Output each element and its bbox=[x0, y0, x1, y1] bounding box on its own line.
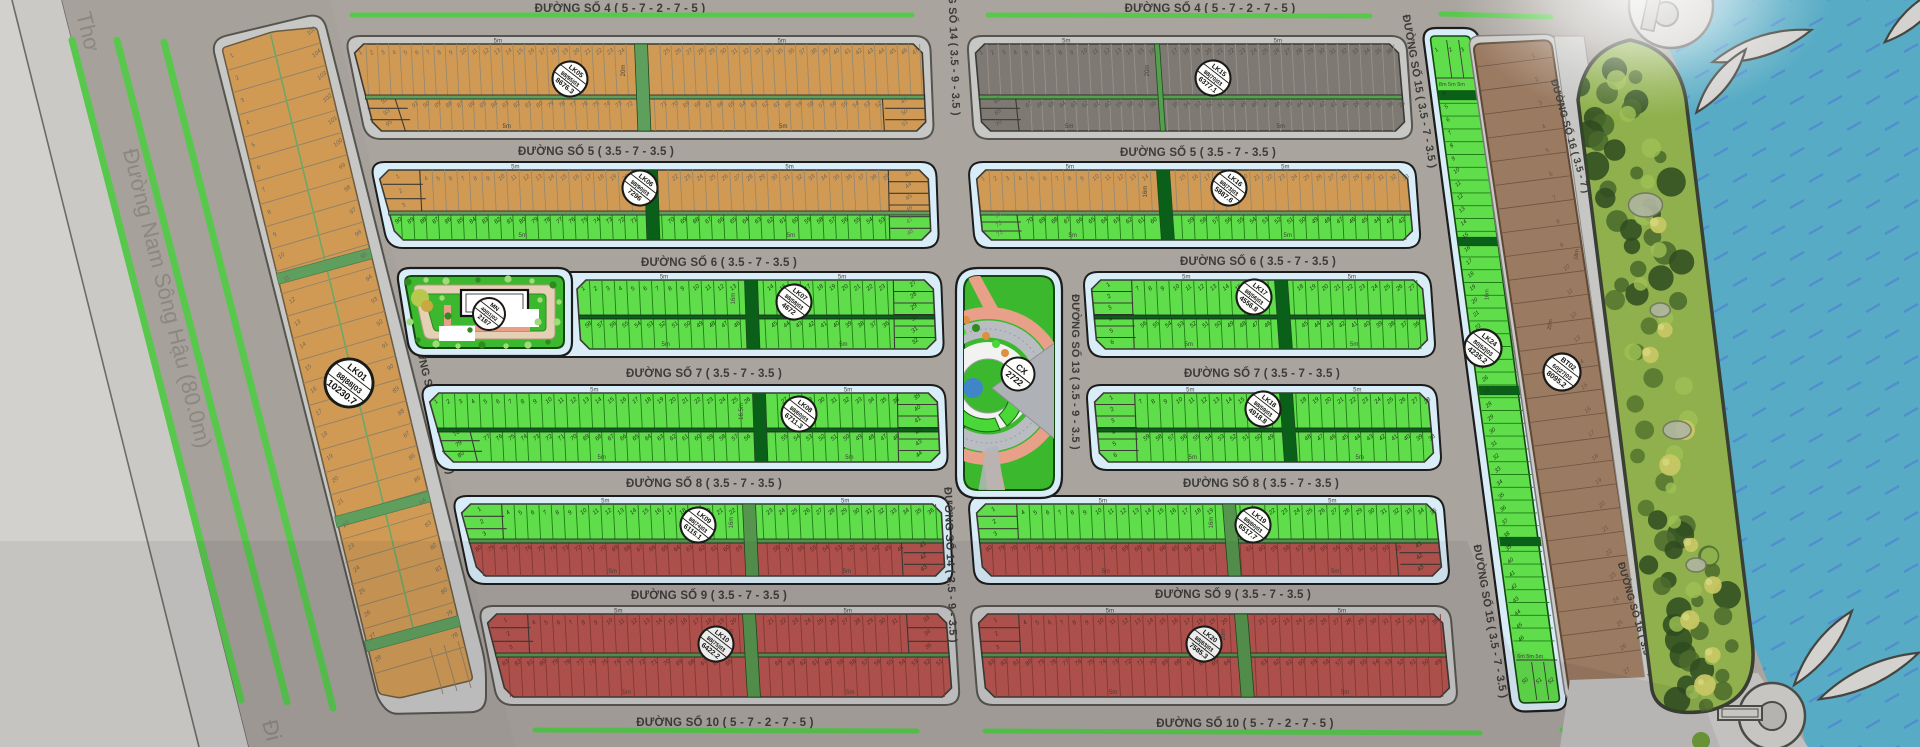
svg-text:5m: 5m bbox=[845, 455, 853, 461]
svg-text:16m: 16m bbox=[1143, 186, 1149, 198]
svg-text:5m: 5m bbox=[1066, 165, 1074, 171]
svg-text:16m: 16m bbox=[1209, 517, 1215, 529]
svg-text:5m: 5m bbox=[787, 233, 795, 239]
svg-text:5m: 5m bbox=[1350, 342, 1358, 348]
svg-text:20m: 20m bbox=[621, 65, 627, 77]
svg-text:5m: 5m bbox=[1182, 275, 1190, 281]
svg-text:5m: 5m bbox=[1185, 342, 1193, 348]
svg-text:ĐƯỜNG SỐ 8 ( 3.5 - 7 - 3.5 ): ĐƯỜNG SỐ 8 ( 3.5 - 7 - 3.5 ) bbox=[1183, 476, 1339, 490]
svg-text:ĐƯỜNG SỐ 6 ( 3.5 - 7 - 3.5 ): ĐƯỜNG SỐ 6 ( 3.5 - 7 - 3.5 ) bbox=[641, 255, 797, 269]
svg-text:16m: 16m bbox=[1485, 289, 1491, 300]
svg-text:5m: 5m bbox=[1353, 388, 1361, 394]
svg-text:16m: 16m bbox=[731, 293, 737, 305]
svg-text:5m: 5m bbox=[1356, 455, 1364, 461]
svg-text:5m: 5m bbox=[1328, 499, 1336, 505]
svg-text:5m: 5m bbox=[1065, 124, 1073, 130]
svg-text:5m: 5m bbox=[598, 455, 606, 461]
svg-text:ĐƯỜNG SỐ 7 ( 3.5 - 7 - 3.5 ): ĐƯỜNG SỐ 7 ( 3.5 - 7 - 3.5 ) bbox=[1184, 366, 1340, 380]
svg-text:5m: 5m bbox=[662, 342, 670, 348]
svg-text:5m: 5m bbox=[519, 233, 527, 239]
svg-text:5m: 5m bbox=[841, 499, 849, 505]
svg-text:5m: 5m bbox=[494, 39, 502, 45]
svg-text:5m: 5m bbox=[779, 124, 787, 130]
svg-text:5m: 5m bbox=[1186, 388, 1194, 394]
svg-text:ĐƯỜNG SỐ 13 ( 3.5 - 9 - 3.5 ): ĐƯỜNG SỐ 13 ( 3.5 - 9 - 3.5 ) bbox=[1069, 294, 1083, 450]
svg-text:ĐƯỜNG SỐ 5 ( 3.5 - 7 - 3.5 ): ĐƯỜNG SỐ 5 ( 3.5 - 7 - 3.5 ) bbox=[1120, 145, 1276, 159]
svg-text:ĐƯỜNG SỐ 6 ( 3.5 - 7 - 3.5 ): ĐƯỜNG SỐ 6 ( 3.5 - 7 - 3.5 ) bbox=[1180, 254, 1336, 268]
svg-text:5m: 5m bbox=[590, 388, 598, 394]
svg-text:ĐƯỜNG SỐ 4 ( 5 - 7 - 2 - 7 - 5: ĐƯỜNG SỐ 4 ( 5 - 7 - 2 - 7 - 5 ) bbox=[1125, 1, 1296, 15]
svg-text:5m: 5m bbox=[1348, 275, 1356, 281]
svg-text:5m: 5m bbox=[1062, 39, 1070, 45]
svg-text:5m: 5m bbox=[503, 124, 511, 130]
svg-text:5m: 5m bbox=[839, 342, 847, 348]
svg-text:16m: 16m bbox=[729, 517, 735, 529]
svg-text:5m: 5m bbox=[1274, 39, 1282, 45]
svg-text:5m: 5m bbox=[601, 499, 609, 505]
svg-text:5m: 5m bbox=[1281, 165, 1289, 171]
svg-text:5m: 5m bbox=[1277, 124, 1285, 130]
svg-text:5m: 5m bbox=[1284, 233, 1292, 239]
svg-text:5m: 5m bbox=[1189, 455, 1197, 461]
svg-text:5m: 5m bbox=[660, 275, 668, 281]
svg-text:5m: 5m bbox=[1069, 233, 1077, 239]
svg-text:20m: 20m bbox=[1145, 65, 1151, 77]
svg-text:5m: 5m bbox=[844, 388, 852, 394]
svg-text:ĐƯỜNG SỐ 7 ( 3.5 - 7 - 3.5 ): ĐƯỜNG SỐ 7 ( 3.5 - 7 - 3.5 ) bbox=[626, 366, 782, 380]
svg-text:ĐƯỜNG SỐ 8 ( 3.5 - 7 - 3.5 ): ĐƯỜNG SỐ 8 ( 3.5 - 7 - 3.5 ) bbox=[626, 476, 782, 490]
svg-text:5m: 5m bbox=[838, 275, 846, 281]
svg-text:5m: 5m bbox=[1099, 499, 1107, 505]
svg-text:ĐƯỜNG SỐ 5 ( 3.5 - 7 - 3.5 ): ĐƯỜNG SỐ 5 ( 3.5 - 7 - 3.5 ) bbox=[518, 144, 674, 158]
svg-text:8m 5m 5m: 8m 5m 5m bbox=[1439, 82, 1465, 88]
svg-text:16.5m: 16.5m bbox=[739, 403, 745, 420]
svg-text:5m: 5m bbox=[778, 39, 786, 45]
svg-text:5m: 5m bbox=[511, 165, 519, 171]
svg-text:5m: 5m bbox=[785, 165, 793, 171]
